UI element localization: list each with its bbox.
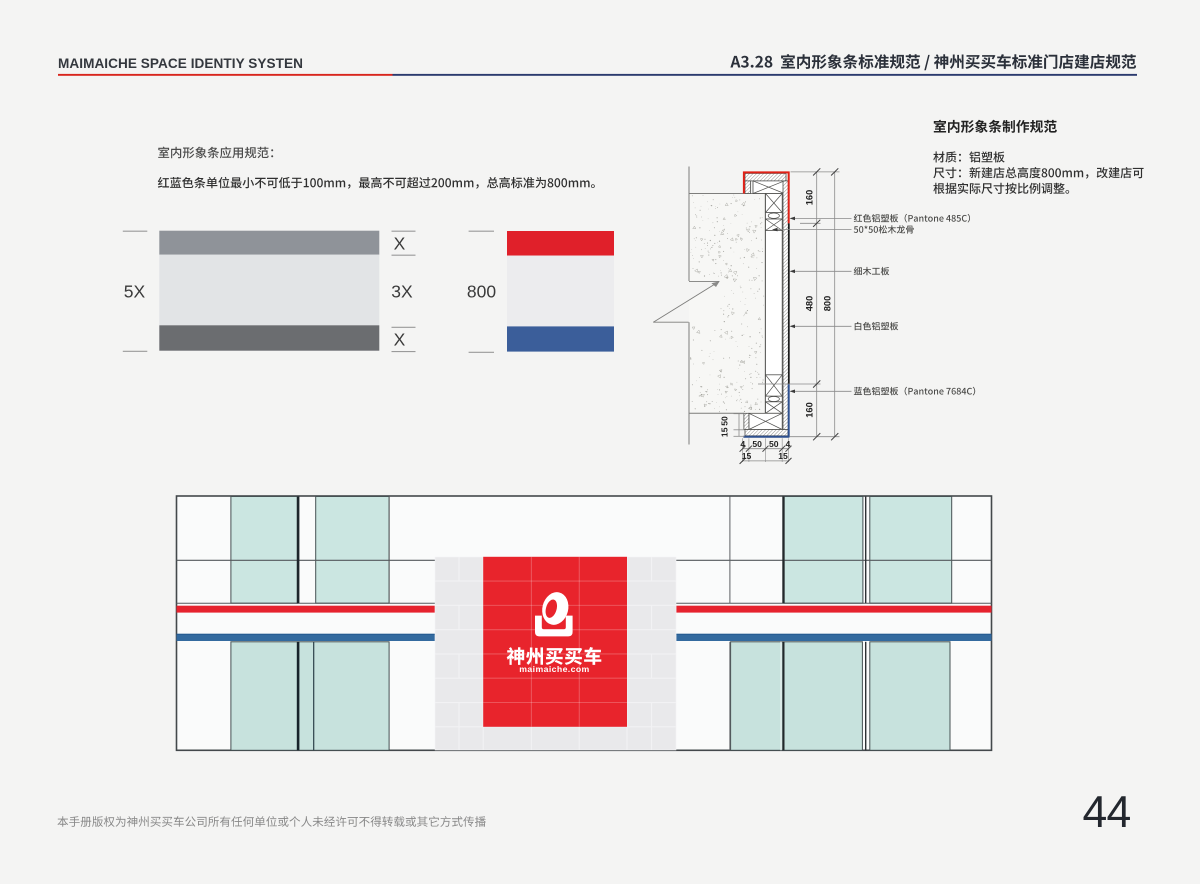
svg-text:800: 800 [467,282,496,302]
svg-text:50: 50 [752,439,762,449]
svg-text:5X: 5X [124,282,146,302]
svg-text:160: 160 [804,190,814,206]
svg-text:15: 15 [720,427,730,437]
svg-text:15: 15 [778,451,788,461]
svg-text:800: 800 [823,296,833,312]
svg-text:3X: 3X [391,282,413,302]
svg-text:50: 50 [720,416,730,426]
svg-text:X: X [394,233,406,253]
svg-text:4: 4 [740,439,745,449]
svg-text:15: 15 [742,451,752,461]
svg-text:50: 50 [769,439,779,449]
svg-text:4: 4 [786,439,791,449]
svg-text:480: 480 [804,296,814,312]
svg-text:X: X [394,330,406,350]
svg-text:160: 160 [804,402,814,418]
svg-text:44: 44 [1083,788,1131,837]
svg-text:MAIMAICHE SPACE IDENTIY SYSTEN: MAIMAICHE SPACE IDENTIY SYSTEN [58,56,303,71]
svg-text:maimaiche.com: maimaiche.com [519,664,589,674]
